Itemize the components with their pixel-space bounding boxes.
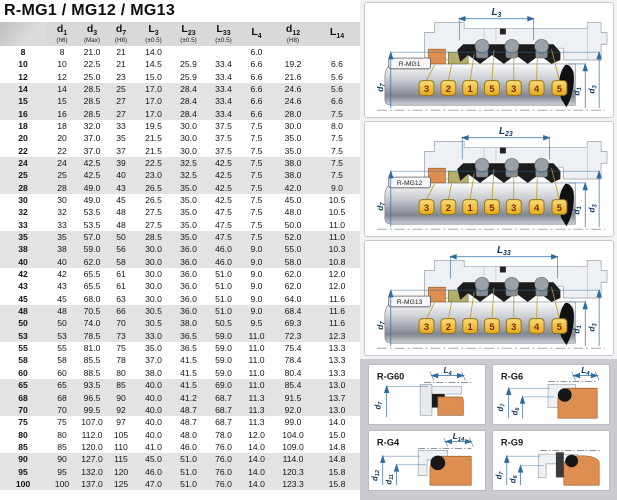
value-cell: 45 bbox=[106, 194, 136, 206]
set-screw bbox=[500, 29, 506, 35]
row-size-cell: 30 bbox=[0, 194, 46, 206]
model-label: R-MG1 bbox=[389, 58, 431, 69]
value-cell: 65.5 bbox=[78, 281, 106, 293]
value-cell: 6.6 bbox=[241, 95, 272, 107]
value-cell: 11.0 bbox=[314, 219, 360, 231]
value-cell: 30.0 bbox=[171, 120, 206, 132]
value-cell: 69.0 bbox=[206, 379, 241, 391]
value-cell: 28.4 bbox=[171, 83, 206, 95]
value-cell: 21 bbox=[106, 58, 136, 70]
left-inner-dimension-label: d11 bbox=[385, 474, 396, 485]
value-cell: 99.0 bbox=[272, 416, 314, 428]
column-header: d12(H8) bbox=[272, 22, 314, 46]
value-cell: 11.3 bbox=[241, 392, 272, 404]
row-size-cell: 90 bbox=[0, 453, 46, 465]
value-cell: 30.0 bbox=[136, 293, 171, 305]
value-cell: 35.0 bbox=[171, 219, 206, 231]
row-size-cell: 15 bbox=[0, 95, 46, 107]
value-cell: 36.5 bbox=[171, 330, 206, 342]
detail-panel-rg9: R-G9 d7 d6 bbox=[492, 430, 610, 491]
svg-text:1: 1 bbox=[468, 322, 473, 332]
value-cell: 65 bbox=[46, 379, 78, 391]
value-cell: 33.4 bbox=[206, 83, 241, 95]
value-cell: 30.0 bbox=[171, 132, 206, 144]
value-cell: 100 bbox=[46, 478, 78, 490]
value-cell: 115 bbox=[106, 453, 136, 465]
value-cell: 39 bbox=[106, 157, 136, 169]
value-cell: 37.0 bbox=[136, 355, 171, 367]
svg-text:5: 5 bbox=[557, 203, 562, 213]
value-cell: 112.0 bbox=[78, 429, 106, 441]
table-body: 8821.02114.06.0101022.52114.525.933.46.6… bbox=[0, 46, 360, 490]
row-size-cell: 33 bbox=[0, 219, 46, 231]
value-cell: 6.6 bbox=[314, 58, 360, 70]
svg-text:4: 4 bbox=[534, 203, 540, 213]
detail-panel-rg4: R-G4 L14 d12 d11 bbox=[368, 430, 486, 491]
value-cell: 105 bbox=[106, 429, 136, 441]
column-header: d1(h6) bbox=[46, 22, 78, 46]
svg-text:3: 3 bbox=[424, 203, 429, 213]
seat-ring-orange bbox=[428, 168, 445, 183]
value-cell: 14.0 bbox=[241, 453, 272, 465]
table-header: d1(h6)d3(Max)d7(H8)L3(±0.5)L23(±0.5)L33(… bbox=[0, 22, 360, 46]
seal-cross-section-diagram: 3 2 1 5 3 4 5 R-MG13 L33 d7 bbox=[365, 241, 613, 355]
table-row: 434365.56130.036.051.09.062.012.0 bbox=[0, 281, 360, 293]
value-cell: 24.6 bbox=[272, 95, 314, 107]
value-cell: 110 bbox=[106, 441, 136, 453]
svg-text:5: 5 bbox=[489, 84, 494, 94]
value-cell: 14 bbox=[46, 83, 78, 95]
value-cell: 11.0 bbox=[314, 231, 360, 243]
svg-text:3: 3 bbox=[511, 84, 516, 94]
value-cell: 28 bbox=[46, 182, 78, 194]
value-cell: 69.3 bbox=[272, 318, 314, 330]
value-cell: 42.0 bbox=[272, 182, 314, 194]
value-cell: 35.0 bbox=[136, 342, 171, 354]
seal-panel-1: 3 2 1 5 3 4 5 R-MG1 L3 d7 bbox=[364, 2, 614, 118]
value-cell: 25.9 bbox=[171, 58, 206, 70]
value-cell: 51.0 bbox=[206, 305, 241, 317]
value-cell: 58 bbox=[106, 256, 136, 268]
value-cell: 38.0 bbox=[272, 169, 314, 181]
value-cell: 81.0 bbox=[78, 342, 106, 354]
value-cell: 10 bbox=[46, 58, 78, 70]
value-cell: 13.3 bbox=[314, 367, 360, 379]
value-cell: 42.5 bbox=[78, 157, 106, 169]
value-cell: 6.6 bbox=[241, 71, 272, 83]
value-cell bbox=[206, 46, 241, 58]
value-cell: 5.6 bbox=[314, 83, 360, 95]
value-cell: 12.0 bbox=[241, 429, 272, 441]
value-cell: 26.5 bbox=[136, 194, 171, 206]
value-cell: 8 bbox=[46, 46, 78, 58]
value-cell bbox=[314, 46, 360, 58]
value-cell: 70 bbox=[46, 404, 78, 416]
o-ring bbox=[565, 455, 578, 468]
table-row: 535378.57333.036.559.011.072.312.3 bbox=[0, 330, 360, 342]
value-cell: 15.0 bbox=[136, 71, 171, 83]
value-cell: 13.0 bbox=[314, 379, 360, 391]
value-cell: 36.0 bbox=[171, 281, 206, 293]
value-cell: 137.0 bbox=[78, 478, 106, 490]
value-cell: 35 bbox=[106, 132, 136, 144]
value-cell: 14.0 bbox=[241, 466, 272, 478]
value-cell: 45.0 bbox=[136, 453, 171, 465]
value-cell: 19.5 bbox=[136, 120, 171, 132]
table-row: 656593.58540.041.569.011.085.413.0 bbox=[0, 379, 360, 391]
value-cell: 80 bbox=[106, 367, 136, 379]
value-cell: 33.0 bbox=[136, 330, 171, 342]
row-size-cell: 18 bbox=[0, 120, 46, 132]
seal-cross-section-diagram: 3 2 1 5 3 4 5 R-MG12 L23 d7 bbox=[365, 122, 613, 236]
value-cell: 11.6 bbox=[314, 293, 360, 305]
table-row: 121225.02315.025.933.46.621.65.6 bbox=[0, 71, 360, 83]
table-row: 252542.54023.032.542.57.538.07.5 bbox=[0, 169, 360, 181]
value-cell: 88.5 bbox=[78, 367, 106, 379]
row-size-cell: 43 bbox=[0, 281, 46, 293]
table-row: 8080112.010540.048.078.012.0104.015.0 bbox=[0, 429, 360, 441]
value-cell: 127.0 bbox=[78, 453, 106, 465]
value-cell: 93.5 bbox=[78, 379, 106, 391]
value-cell: 17.0 bbox=[136, 83, 171, 95]
value-cell: 51.0 bbox=[171, 453, 206, 465]
value-cell: 40.0 bbox=[136, 404, 171, 416]
value-cell: 62.0 bbox=[272, 281, 314, 293]
table-row: 454568.06330.036.051.09.064.011.6 bbox=[0, 293, 360, 305]
seal-panel-2: 3 2 1 5 3 4 5 R-MG12 L23 d7 bbox=[364, 121, 614, 237]
value-cell: 132.0 bbox=[78, 466, 106, 478]
value-cell: 42.5 bbox=[78, 169, 106, 181]
value-cell: 12.3 bbox=[314, 330, 360, 342]
value-cell: 30.5 bbox=[136, 318, 171, 330]
row-size-cell: 68 bbox=[0, 392, 46, 404]
value-cell: 26.5 bbox=[136, 182, 171, 194]
value-cell: 11.6 bbox=[314, 305, 360, 317]
value-cell: 9.0 bbox=[241, 268, 272, 280]
value-cell: 14.0 bbox=[241, 441, 272, 453]
value-cell: 6.6 bbox=[241, 58, 272, 70]
row-size-cell: 40 bbox=[0, 256, 46, 268]
value-cell: 28.4 bbox=[171, 108, 206, 120]
row-size-cell: 45 bbox=[0, 293, 46, 305]
value-cell: 9.5 bbox=[241, 318, 272, 330]
detail-panel-rg60: R-G60 L4 d7 bbox=[368, 364, 486, 425]
left-dimension-label: d7 bbox=[496, 403, 507, 412]
value-cell: 104.0 bbox=[272, 429, 314, 441]
packing-bar bbox=[556, 452, 564, 477]
value-cell: 38 bbox=[46, 244, 78, 256]
row-size-cell: 65 bbox=[0, 379, 46, 391]
value-cell: 38.0 bbox=[136, 367, 171, 379]
value-cell: 73 bbox=[106, 330, 136, 342]
svg-text:3: 3 bbox=[424, 322, 429, 332]
value-cell: 114.0 bbox=[272, 453, 314, 465]
value-cell: 38.0 bbox=[171, 318, 206, 330]
value-cell: 40.0 bbox=[136, 379, 171, 391]
value-cell: 30.0 bbox=[136, 268, 171, 280]
row-size-cell: 48 bbox=[0, 305, 46, 317]
value-cell: 7.5 bbox=[241, 194, 272, 206]
value-cell: 35.0 bbox=[171, 182, 206, 194]
value-cell: 7.5 bbox=[314, 169, 360, 181]
left-dimension-label: d7 bbox=[494, 471, 505, 480]
value-cell: 46.0 bbox=[206, 256, 241, 268]
value-cell: 48.7 bbox=[171, 404, 206, 416]
value-cell: 21.5 bbox=[136, 145, 171, 157]
value-cell: 40.0 bbox=[136, 392, 171, 404]
value-cell: 17.0 bbox=[136, 95, 171, 107]
value-cell: 35.0 bbox=[272, 132, 314, 144]
value-cell: 92.0 bbox=[272, 404, 314, 416]
value-cell: 53.5 bbox=[78, 219, 106, 231]
row-size-cell: 16 bbox=[0, 108, 46, 120]
value-cell: 15.0 bbox=[314, 429, 360, 441]
value-cell: 76.0 bbox=[206, 466, 241, 478]
column-header: L3(±0.5) bbox=[136, 22, 171, 46]
value-cell: 68.7 bbox=[206, 416, 241, 428]
value-cell: 12 bbox=[46, 71, 78, 83]
table-row: 7575107.09740.048.768.711.399.014.0 bbox=[0, 416, 360, 428]
value-cell: 96.5 bbox=[78, 392, 106, 404]
value-cell: 20 bbox=[46, 132, 78, 144]
table-row: 383859.05630.036.046.09.055.010.3 bbox=[0, 244, 360, 256]
value-cell: 91.5 bbox=[272, 392, 314, 404]
shaft bbox=[385, 64, 575, 105]
value-cell: 7.5 bbox=[241, 169, 272, 181]
value-cell: 99.5 bbox=[78, 404, 106, 416]
value-cell: 7.5 bbox=[314, 145, 360, 157]
value-cell: 24.6 bbox=[272, 83, 314, 95]
value-cell: 11.0 bbox=[241, 342, 272, 354]
value-cell: 66 bbox=[106, 305, 136, 317]
value-cell: 21.6 bbox=[272, 71, 314, 83]
value-cell: 22.5 bbox=[136, 157, 171, 169]
column-header: L14 bbox=[314, 22, 360, 46]
value-cell: 35.0 bbox=[272, 145, 314, 157]
value-cell: 33.4 bbox=[206, 58, 241, 70]
value-cell: 78.0 bbox=[206, 429, 241, 441]
panel-label: R-G4 bbox=[377, 438, 400, 448]
value-cell: 14.0 bbox=[136, 46, 171, 58]
corner-cell bbox=[0, 22, 46, 46]
row-size-cell: 32 bbox=[0, 206, 46, 218]
value-cell: 5.6 bbox=[314, 71, 360, 83]
value-cell: 49.0 bbox=[78, 182, 106, 194]
value-cell: 90 bbox=[46, 453, 78, 465]
table-row: 8585120.011041.046.076.014.0109.014.8 bbox=[0, 441, 360, 453]
value-cell: 76.0 bbox=[206, 478, 241, 490]
row-size-cell: 50 bbox=[0, 318, 46, 330]
value-cell: 70 bbox=[106, 318, 136, 330]
value-cell: 7.5 bbox=[241, 145, 272, 157]
value-cell: 30.5 bbox=[136, 305, 171, 317]
value-cell: 7.5 bbox=[241, 120, 272, 132]
value-cell: 72.3 bbox=[272, 330, 314, 342]
value-cell: 18 bbox=[46, 120, 78, 132]
value-cell: 7.5 bbox=[241, 219, 272, 231]
svg-text:R-MG13: R-MG13 bbox=[397, 299, 423, 306]
value-cell: 36.0 bbox=[171, 268, 206, 280]
value-cell: 50.0 bbox=[272, 219, 314, 231]
value-cell: 95 bbox=[46, 466, 78, 478]
value-cell: 7.5 bbox=[314, 108, 360, 120]
value-cell: 51.0 bbox=[171, 466, 206, 478]
value-cell: 47.5 bbox=[206, 219, 241, 231]
value-cell: 30.0 bbox=[272, 120, 314, 132]
value-cell: 68.7 bbox=[206, 392, 241, 404]
value-cell: 33.4 bbox=[206, 95, 241, 107]
value-cell: 45 bbox=[46, 293, 78, 305]
table-row: 8821.02114.06.0 bbox=[0, 46, 360, 58]
value-cell: 7.5 bbox=[241, 231, 272, 243]
value-cell: 36.0 bbox=[171, 305, 206, 317]
value-cell: 7.5 bbox=[241, 206, 272, 218]
table-row: 585885.57837.041.559.011.078.413.3 bbox=[0, 355, 360, 367]
model-label: R-MG13 bbox=[389, 296, 431, 307]
set-screw bbox=[500, 148, 506, 154]
table-row: 323253.54827.535.047.57.548.010.5 bbox=[0, 206, 360, 218]
value-cell: 75.4 bbox=[272, 342, 314, 354]
value-cell: 75 bbox=[46, 416, 78, 428]
value-cell: 10.3 bbox=[314, 244, 360, 256]
right-outer-dimension-label: d3 bbox=[587, 85, 599, 94]
table-row: 161628.52717.028.433.46.628.07.5 bbox=[0, 108, 360, 120]
svg-text:2: 2 bbox=[446, 84, 451, 94]
value-cell: 33.4 bbox=[206, 71, 241, 83]
column-header: d7(H8) bbox=[106, 22, 136, 46]
value-cell: 76.0 bbox=[206, 453, 241, 465]
row-size-cell: 24 bbox=[0, 157, 46, 169]
value-cell: 33 bbox=[46, 219, 78, 231]
value-cell: 17.0 bbox=[136, 108, 171, 120]
svg-text:5: 5 bbox=[489, 322, 494, 332]
table-row: 282849.04326.535.042.57.542.09.0 bbox=[0, 182, 360, 194]
value-cell: 11.3 bbox=[241, 404, 272, 416]
row-size-cell: 55 bbox=[0, 342, 46, 354]
value-cell: 10.8 bbox=[314, 256, 360, 268]
value-cell: 109.0 bbox=[272, 441, 314, 453]
value-cell: 8.0 bbox=[314, 120, 360, 132]
row-size-cell: 14 bbox=[0, 83, 46, 95]
svg-text:R-MG12: R-MG12 bbox=[397, 180, 423, 187]
value-cell: 30.0 bbox=[136, 256, 171, 268]
row-size-cell: 95 bbox=[0, 466, 46, 478]
value-cell: 36.0 bbox=[171, 256, 206, 268]
value-cell: 21 bbox=[106, 46, 136, 58]
table-row: 181832.03319.530.037.57.530.08.0 bbox=[0, 120, 360, 132]
value-cell: 40 bbox=[106, 169, 136, 181]
value-cell: 46.0 bbox=[136, 466, 171, 478]
o-ring bbox=[430, 456, 445, 471]
top-dimension-label: L23 bbox=[499, 126, 513, 138]
value-cell: 120.3 bbox=[272, 466, 314, 478]
svg-text:4: 4 bbox=[534, 84, 540, 94]
table-row: 101022.52114.525.933.46.619.26.6 bbox=[0, 58, 360, 70]
value-cell: 36.5 bbox=[171, 342, 206, 354]
value-cell: 51.0 bbox=[206, 268, 241, 280]
row-size-cell: 28 bbox=[0, 182, 46, 194]
value-cell: 10.5 bbox=[314, 206, 360, 218]
value-cell: 32 bbox=[46, 206, 78, 218]
value-cell: 49.0 bbox=[78, 194, 106, 206]
value-cell: 107.0 bbox=[78, 416, 106, 428]
value-cell: 33.4 bbox=[206, 108, 241, 120]
value-cell: 62.0 bbox=[78, 256, 106, 268]
value-cell: 30 bbox=[46, 194, 78, 206]
value-cell: 28.5 bbox=[78, 83, 106, 95]
value-cell: 43 bbox=[46, 281, 78, 293]
table-row: 9090127.011545.051.076.014.0114.014.8 bbox=[0, 453, 360, 465]
value-cell: 9.0 bbox=[241, 305, 272, 317]
value-cell: 61 bbox=[106, 281, 136, 293]
seat-ring bbox=[438, 397, 464, 415]
value-cell: 15.8 bbox=[314, 466, 360, 478]
column-header: L23(±0.5) bbox=[171, 22, 206, 46]
shaft bbox=[385, 183, 575, 224]
value-cell: 22.5 bbox=[78, 58, 106, 70]
value-cell: 21.5 bbox=[136, 132, 171, 144]
value-cell: 120 bbox=[106, 466, 136, 478]
row-size-cell: 10 bbox=[0, 58, 46, 70]
value-cell: 11.3 bbox=[241, 416, 272, 428]
dimension-table: d1(h6)d3(Max)d7(H8)L3(±0.5)L23(±0.5)L33(… bbox=[0, 22, 360, 490]
value-cell: 25.0 bbox=[78, 71, 106, 83]
svg-text:R-MG1: R-MG1 bbox=[399, 61, 421, 68]
value-cell: 11.0 bbox=[241, 379, 272, 391]
svg-text:4: 4 bbox=[534, 322, 540, 332]
row-size-cell: 100 bbox=[0, 478, 46, 490]
value-cell: 6.0 bbox=[241, 46, 272, 58]
value-cell: 27.5 bbox=[136, 219, 171, 231]
value-cell: 9.0 bbox=[314, 182, 360, 194]
value-cell: 47.5 bbox=[206, 206, 241, 218]
value-cell: 74.0 bbox=[78, 318, 106, 330]
value-cell: 50 bbox=[46, 318, 78, 330]
value-cell bbox=[171, 46, 206, 58]
value-cell: 32.5 bbox=[171, 169, 206, 181]
value-cell: 63 bbox=[106, 293, 136, 305]
value-cell: 41.5 bbox=[171, 367, 206, 379]
value-cell: 75 bbox=[106, 342, 136, 354]
table-row: 303049.04526.535.042.57.545.010.5 bbox=[0, 194, 360, 206]
value-cell: 42.5 bbox=[206, 194, 241, 206]
value-cell: 85 bbox=[106, 379, 136, 391]
value-cell: 37.0 bbox=[78, 132, 106, 144]
value-cell: 36.0 bbox=[171, 244, 206, 256]
table-row: 202037.03521.530.037.57.535.07.5 bbox=[0, 132, 360, 144]
value-cell: 28.0 bbox=[272, 108, 314, 120]
value-cell: 59.0 bbox=[206, 330, 241, 342]
value-cell: 35.0 bbox=[171, 194, 206, 206]
seat-holder bbox=[420, 384, 432, 415]
value-cell: 120.0 bbox=[78, 441, 106, 453]
table-row: 606088.58038.041.559.011.080.413.3 bbox=[0, 367, 360, 379]
table-row: 242442.53922.532.542.57.538.07.5 bbox=[0, 157, 360, 169]
value-cell: 55.0 bbox=[272, 244, 314, 256]
table-row: 222237.03721.530.037.57.535.07.5 bbox=[0, 145, 360, 157]
svg-text:5: 5 bbox=[557, 84, 562, 94]
model-label: R-MG12 bbox=[389, 177, 431, 188]
value-cell: 13.7 bbox=[314, 392, 360, 404]
value-cell: 43 bbox=[106, 182, 136, 194]
value-cell: 13.3 bbox=[314, 355, 360, 367]
table-row: 505074.07030.538.050.59.569.311.6 bbox=[0, 318, 360, 330]
row-size-cell: 70 bbox=[0, 404, 46, 416]
value-cell: 50 bbox=[106, 231, 136, 243]
value-cell: 6.6 bbox=[241, 83, 272, 95]
value-cell: 15.8 bbox=[314, 478, 360, 490]
value-cell: 45.0 bbox=[272, 194, 314, 206]
